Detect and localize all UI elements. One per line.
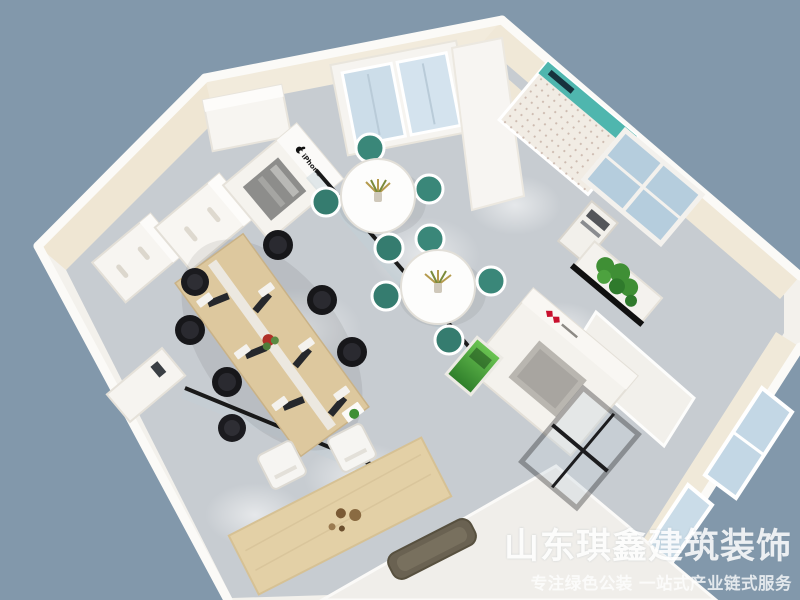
interior-render-scene: iPhone (0, 0, 800, 600)
render-canvas: iPhone (0, 0, 800, 600)
